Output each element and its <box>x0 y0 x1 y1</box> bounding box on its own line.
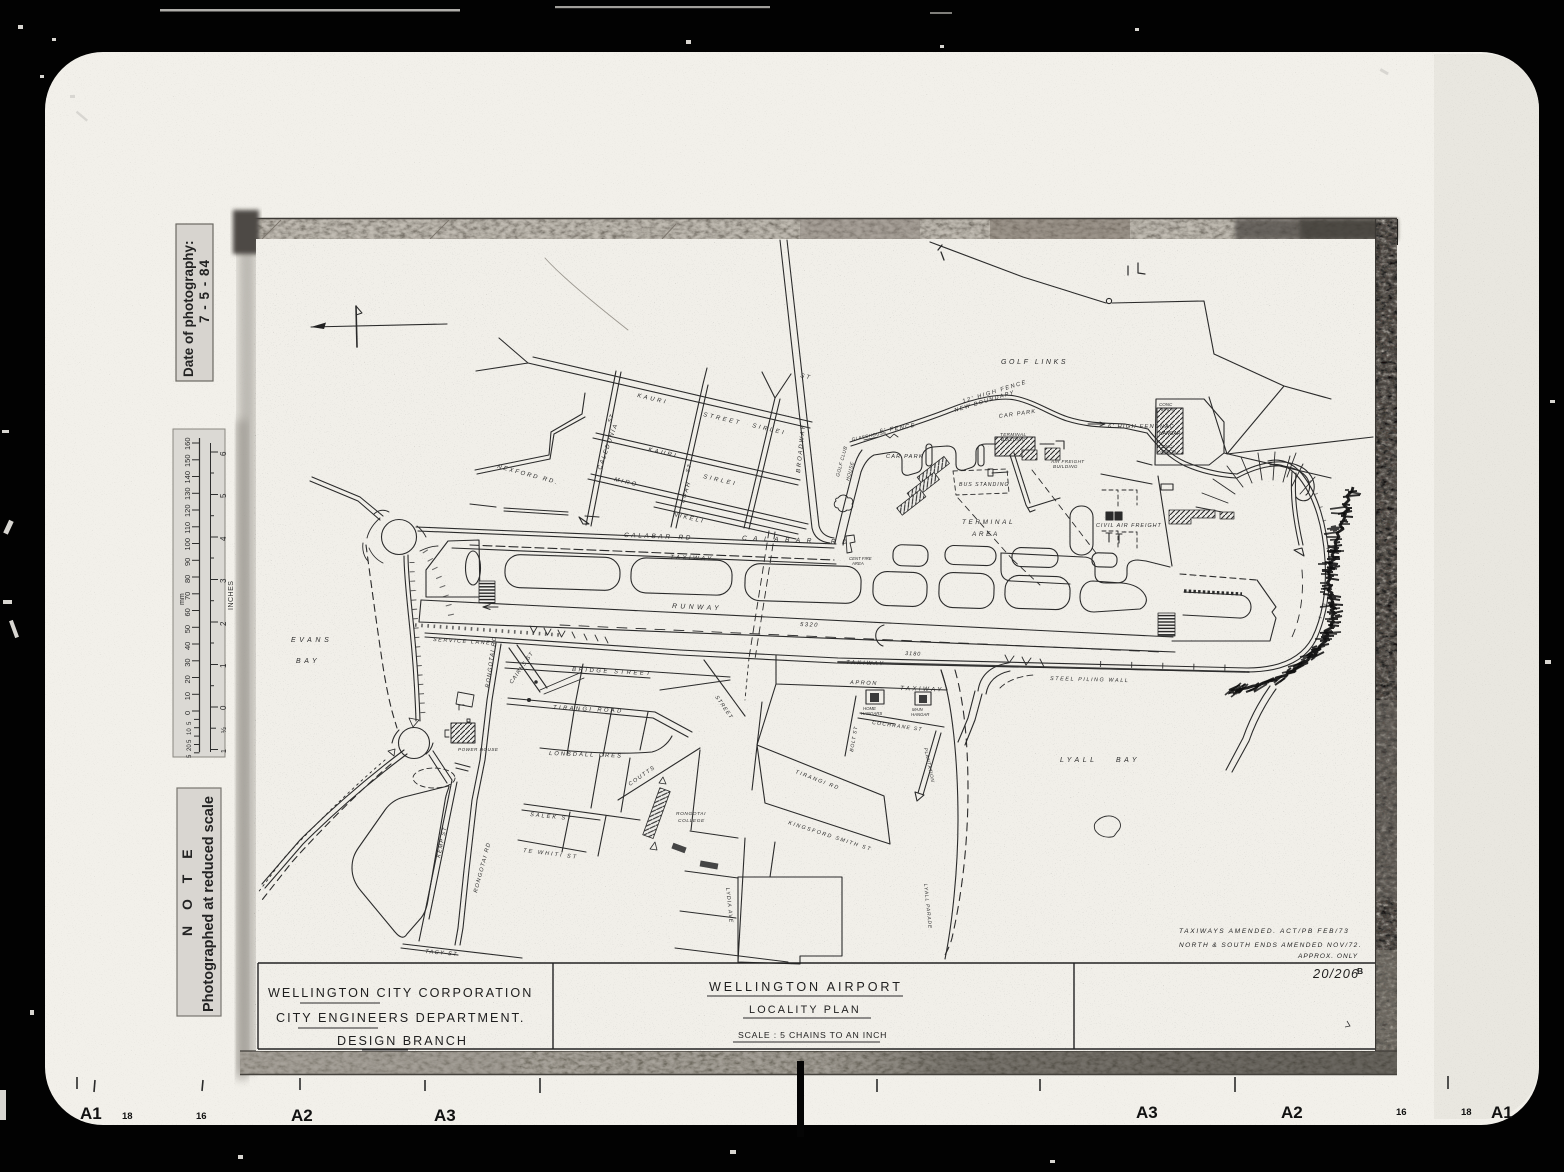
svg-text:SCALE : 5 CHAINS TO AN INCH: SCALE : 5 CHAINS TO AN INCH <box>738 1030 887 1040</box>
svg-text:COLLEGE: COLLEGE <box>678 818 705 824</box>
svg-text:4: 4 <box>219 536 228 541</box>
svg-text:B: B <box>1357 966 1363 976</box>
svg-text:APPROX. ONLY: APPROX. ONLY <box>1297 953 1358 960</box>
svg-text:CAR PARK: CAR PARK <box>886 454 924 460</box>
svg-text:20/206: 20/206 <box>1312 966 1359 981</box>
svg-text:CIVIL AIR FREIGHT: CIVIL AIR FREIGHT <box>1096 523 1162 529</box>
svg-text:LOCALITY PLAN: LOCALITY PLAN <box>749 1004 861 1016</box>
svg-text:110: 110 <box>183 522 192 534</box>
svg-text:POWER HOUSE: POWER HOUSE <box>458 747 499 752</box>
svg-text:LYALL: LYALL <box>1060 757 1098 764</box>
svg-text:7 - 5 - 84: 7 - 5 - 84 <box>197 259 212 323</box>
svg-text:50: 50 <box>183 625 192 633</box>
svg-text:½: ½ <box>220 727 228 733</box>
svg-text:N.A.C: N.A.C <box>1160 424 1174 430</box>
svg-text:BUS STANDING: BUS STANDING <box>959 482 1010 488</box>
svg-text:16: 16 <box>196 1111 207 1122</box>
svg-text:BUILDING: BUILDING <box>1001 437 1026 442</box>
svg-text:3180: 3180 <box>905 651 922 658</box>
svg-text:40: 40 <box>183 642 192 650</box>
svg-text:TAXIWAYS AMENDED. ACT/PB FEB/7: TAXIWAYS AMENDED. ACT/PB FEB/73 <box>1179 928 1349 935</box>
svg-text:160: 160 <box>183 437 192 450</box>
svg-text:DESIGN BRANCH: DESIGN BRANCH <box>337 1034 468 1048</box>
svg-text:130: 130 <box>183 487 192 500</box>
svg-text:140: 140 <box>183 471 192 484</box>
svg-text:A1: A1 <box>1491 1103 1513 1122</box>
svg-text:10: 10 <box>183 692 192 700</box>
svg-text:0: 0 <box>183 711 192 715</box>
svg-text:120: 120 <box>183 504 192 517</box>
svg-text:BAY: BAY <box>1116 757 1140 764</box>
svg-text:3: 3 <box>219 578 228 583</box>
svg-text:18: 18 <box>1461 1107 1472 1118</box>
svg-text:100: 100 <box>183 538 192 551</box>
svg-text:2: 2 <box>219 621 228 626</box>
svg-text:mm: mm <box>179 593 186 605</box>
svg-text:20: 20 <box>183 675 192 683</box>
svg-text:N O T E: N O T E <box>179 843 195 936</box>
svg-text:TERMINAL: TERMINAL <box>962 519 1015 526</box>
svg-text:A1: A1 <box>80 1104 102 1123</box>
svg-text:RONGOTAI: RONGOTAI <box>676 811 706 817</box>
svg-text:A3: A3 <box>1136 1103 1158 1122</box>
svg-text:5: 5 <box>219 493 228 498</box>
svg-text:HANGAR: HANGAR <box>1159 431 1181 437</box>
svg-text:6: 6 <box>219 451 228 456</box>
svg-text:10: 10 <box>187 728 193 735</box>
svg-text:APRON: APRON <box>1158 407 1176 412</box>
svg-text:5320: 5320 <box>800 622 819 629</box>
svg-text:1: 1 <box>221 749 228 753</box>
svg-text:90: 90 <box>183 558 192 566</box>
svg-text:BUILDING: BUILDING <box>1053 464 1078 469</box>
svg-text:APRON: APRON <box>849 680 878 687</box>
svg-text:BAY: BAY <box>296 658 320 665</box>
svg-text:EVANS: EVANS <box>291 637 332 644</box>
svg-text:20: 20 <box>187 744 193 751</box>
svg-text:60: 60 <box>183 608 192 616</box>
svg-text:0: 0 <box>219 705 228 710</box>
svg-text:CITY ENGINEERS DEPARTMENT.: CITY ENGINEERS DEPARTMENT. <box>276 1011 525 1025</box>
svg-text:Date of photography:: Date of photography: <box>181 241 196 378</box>
svg-text:NORTH & SOUTH ENDS AMENDED NOV: NORTH & SOUTH ENDS AMENDED NOV/72. <box>1179 942 1362 949</box>
svg-text:AREA: AREA <box>971 531 1000 538</box>
svg-text:30: 30 <box>183 658 192 666</box>
svg-text:AREA: AREA <box>851 561 864 566</box>
svg-text:INCHES: INCHES <box>228 581 235 610</box>
svg-text:Photographed at reduced scale: Photographed at reduced scale <box>201 796 217 1012</box>
svg-text:WELLINGTON CITY CORPORATION: WELLINGTON CITY CORPORATION <box>268 986 533 1000</box>
svg-text:150: 150 <box>183 454 192 467</box>
svg-text:18: 18 <box>122 1111 133 1122</box>
svg-text:GOLF LINKS: GOLF LINKS <box>1001 359 1068 366</box>
svg-text:A3: A3 <box>434 1106 456 1125</box>
svg-text:WELLINGTON AIRPORT: WELLINGTON AIRPORT <box>709 980 903 994</box>
svg-text:HANGAR: HANGAR <box>911 712 929 717</box>
svg-text:A2: A2 <box>1281 1103 1303 1122</box>
svg-text:1: 1 <box>219 663 228 668</box>
svg-text:16: 16 <box>1396 1107 1407 1118</box>
svg-text:80: 80 <box>183 575 192 583</box>
svg-text:A2: A2 <box>291 1106 313 1125</box>
